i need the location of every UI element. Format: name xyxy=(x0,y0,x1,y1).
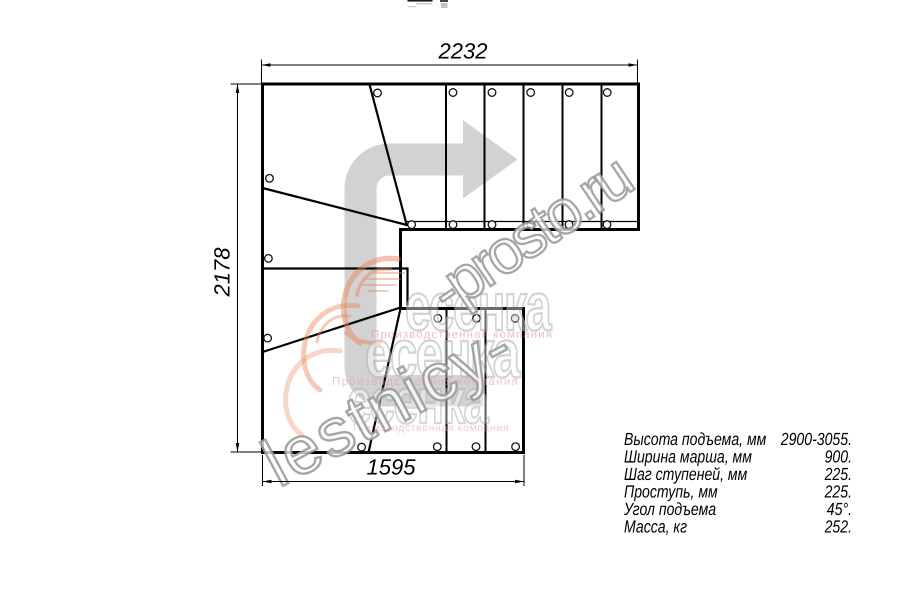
svg-text:1595: 1595 xyxy=(367,455,417,480)
svg-text:2178: 2178 xyxy=(210,247,235,298)
svg-text:252.: 252. xyxy=(824,517,852,537)
svg-text:Масса, кг: Масса, кг xyxy=(624,517,687,537)
svg-text:2232: 2232 xyxy=(438,39,488,64)
